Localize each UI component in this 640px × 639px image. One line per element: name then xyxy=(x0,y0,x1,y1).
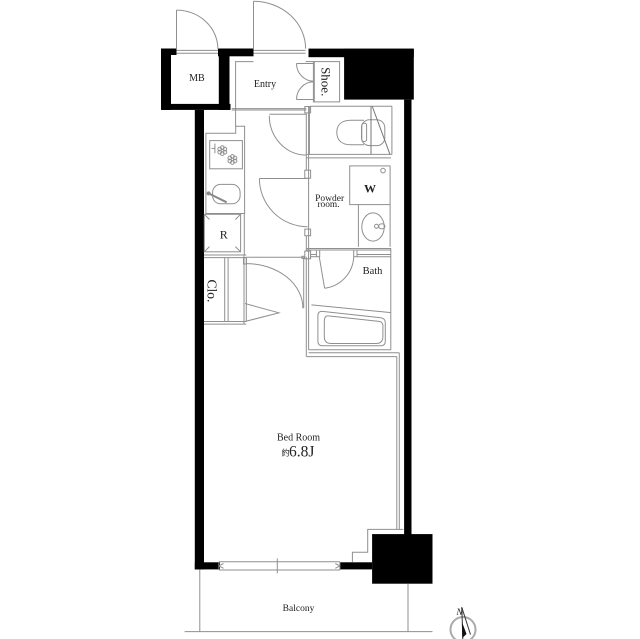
svg-text:Clo.: Clo. xyxy=(205,280,220,303)
svg-text:Shoe.: Shoe. xyxy=(319,67,334,96)
svg-text:N: N xyxy=(455,607,463,617)
svg-text:Bed Room: Bed Room xyxy=(277,433,320,444)
svg-text:Balcony: Balcony xyxy=(283,604,315,614)
svg-text:MB: MB xyxy=(189,73,205,84)
svg-text:W: W xyxy=(364,182,376,196)
svg-text:6.8J: 6.8J xyxy=(289,444,314,461)
svg-text:R: R xyxy=(220,228,228,242)
svg-text:room.: room. xyxy=(317,200,339,210)
svg-text:Entry: Entry xyxy=(254,79,276,90)
svg-text:Bath: Bath xyxy=(363,266,384,277)
